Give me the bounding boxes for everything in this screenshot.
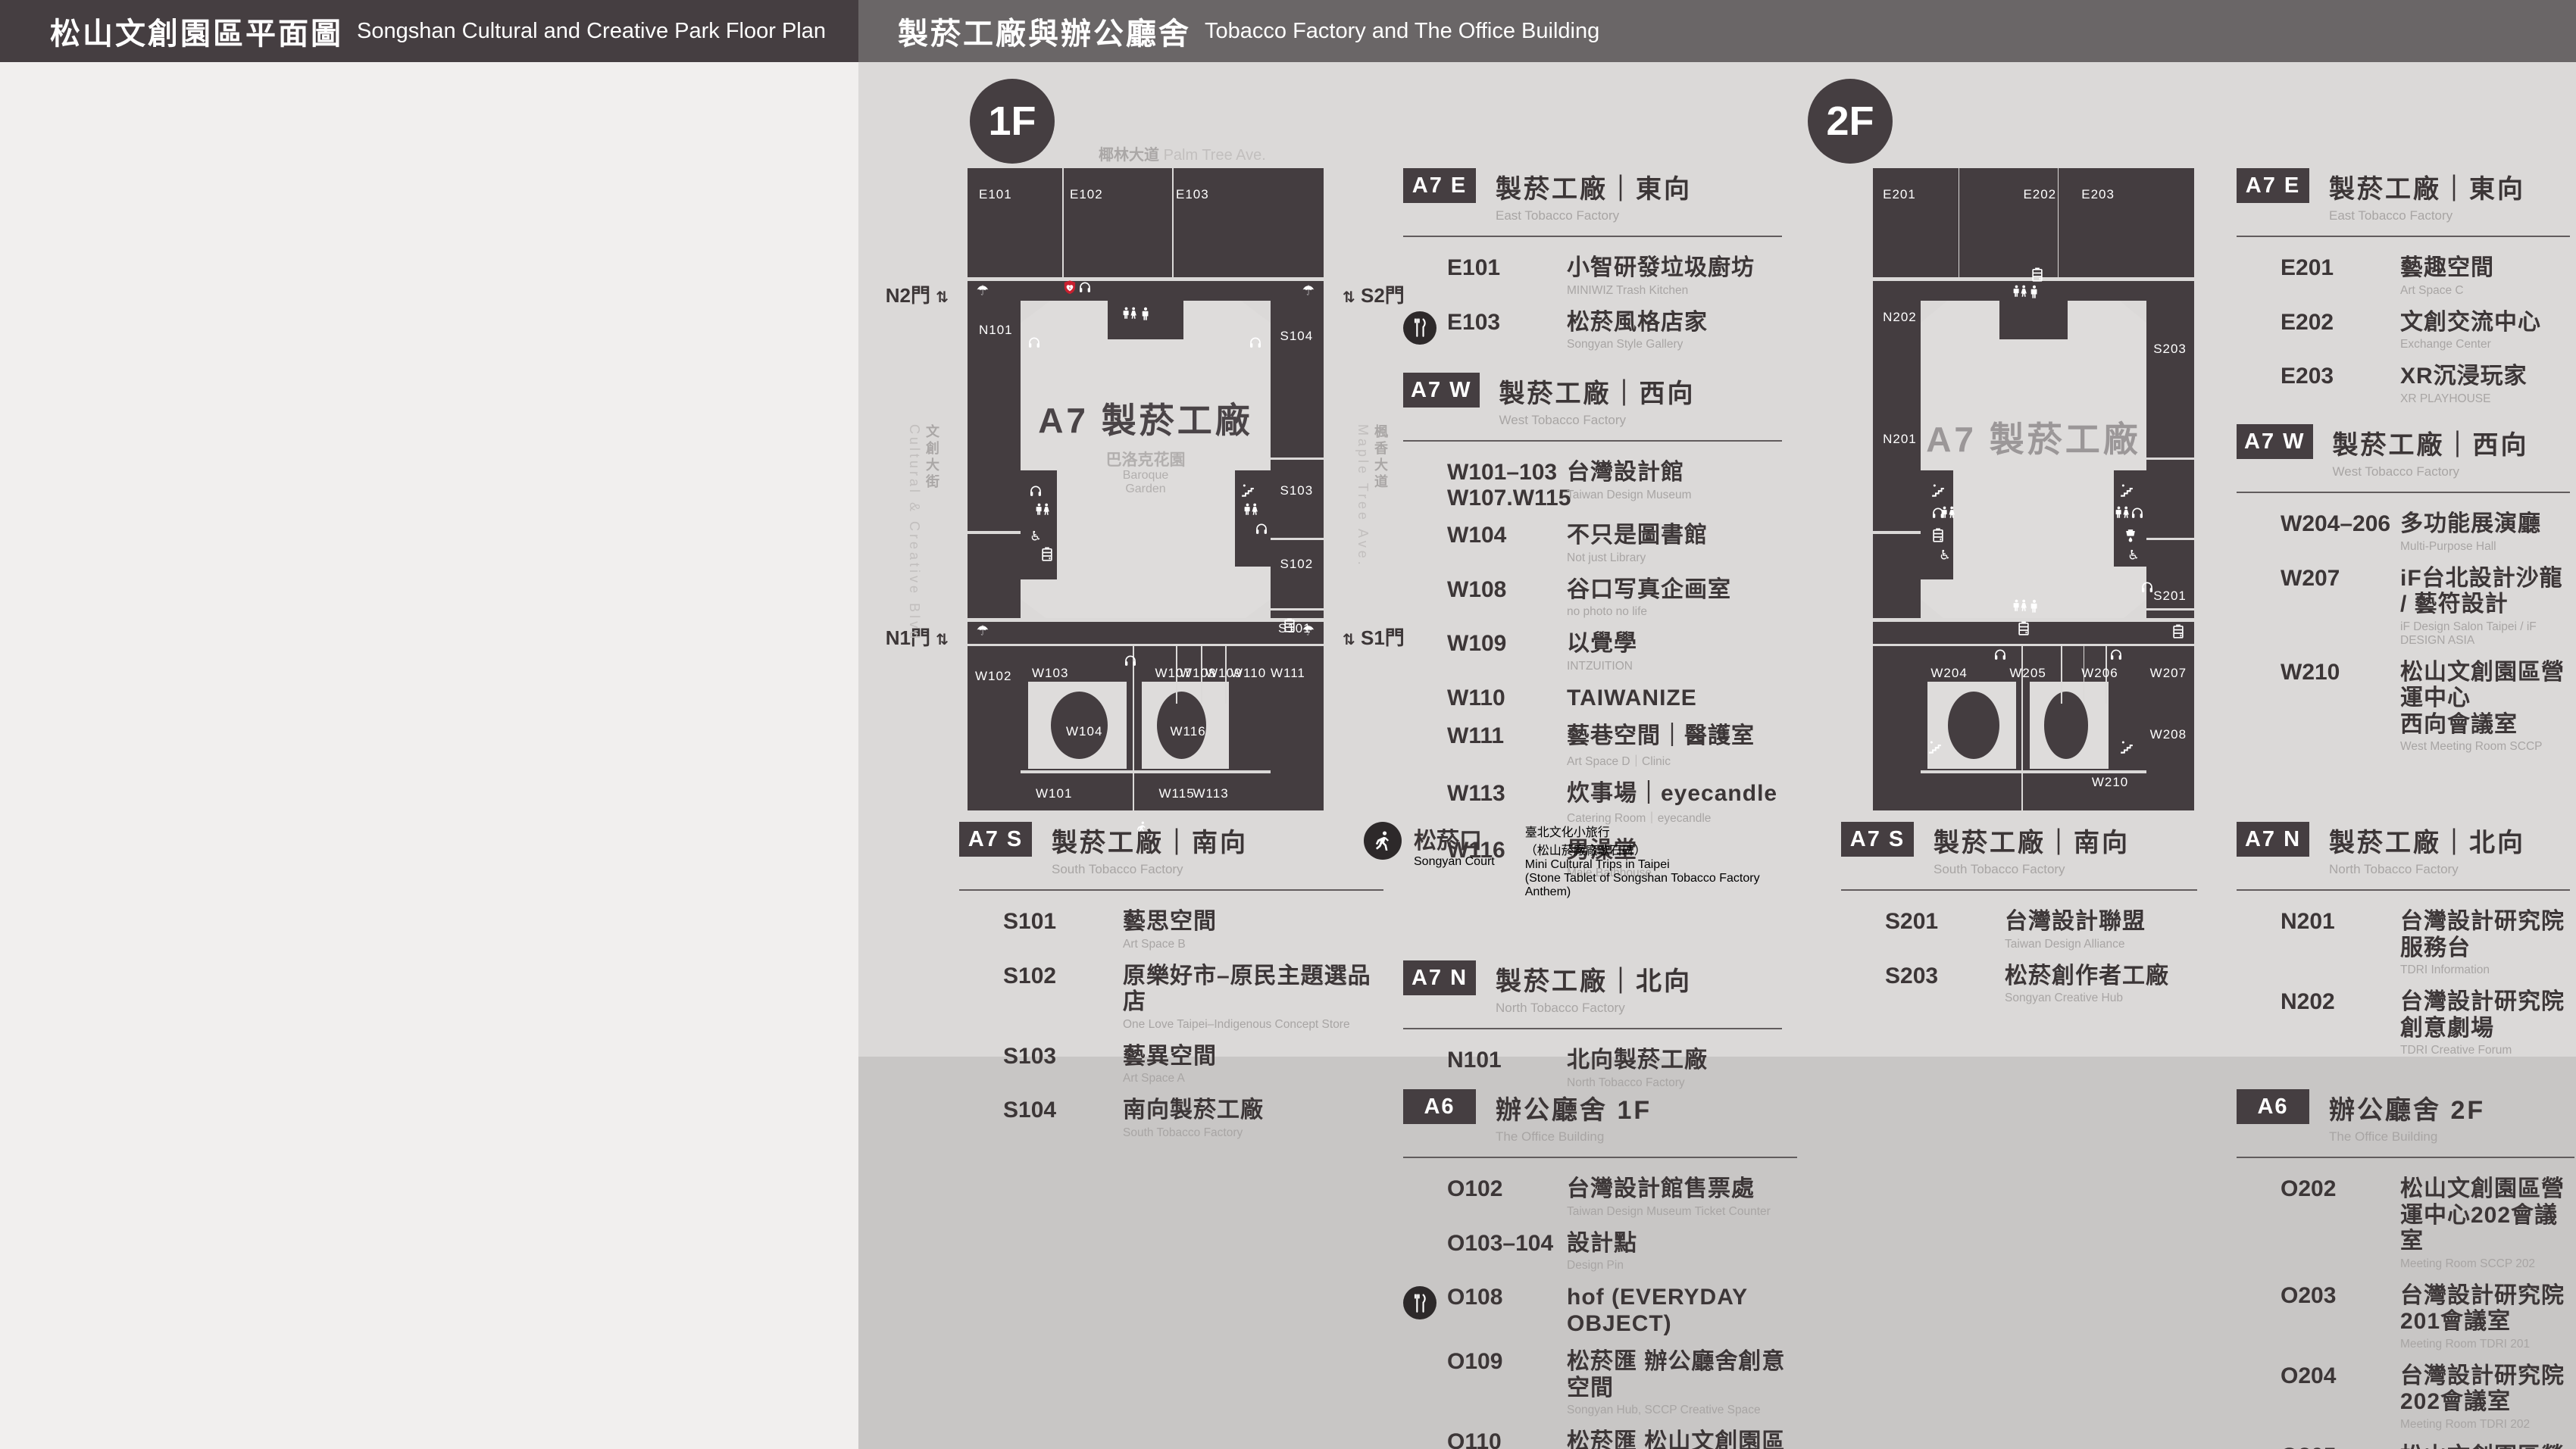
toilet-icon bbox=[1123, 306, 1138, 321]
list-item: W111藝巷空間｜醫護室Art Space D｜Clinic bbox=[1447, 723, 1782, 769]
room-code: O204 bbox=[2281, 1363, 2400, 1389]
garden-label-en: BaroqueGarden bbox=[1123, 469, 1169, 496]
item-name-en: Meeting Room TDRI 202 bbox=[2400, 1418, 2574, 1432]
section-title-zh: 製菸工廠與辦公廳舍 bbox=[898, 9, 1191, 53]
umbrella-icon: ☂ bbox=[975, 283, 990, 298]
section-rows: O102台灣設計館售票處Taiwan Design Museum Ticket … bbox=[1447, 1176, 1797, 1449]
section-title: 辦公廳舍 1FThe Office Building bbox=[1496, 1089, 1652, 1145]
wall-line bbox=[1959, 168, 1960, 277]
section-2f-west: A7 W製菸工廠｜西向West Tobacco FactoryW204–206多… bbox=[2237, 424, 2570, 766]
door-S1門: ⇅ S1門 bbox=[1343, 623, 1405, 651]
list-item: W101–103W107.W115台灣設計館Taiwan Design Muse… bbox=[1447, 460, 1782, 511]
top-facility-block bbox=[1999, 301, 2068, 339]
toilet-icon bbox=[2013, 284, 2028, 299]
room-label-E201: E201 bbox=[1883, 187, 1916, 202]
room-code: O108 bbox=[1447, 1285, 1567, 1310]
item-body: iF台北設計沙龍 / 藝符設計iF Design Salon Taipei / … bbox=[2400, 566, 2570, 648]
item-name-zh: 文創交流中心 bbox=[2400, 310, 2570, 336]
door-S2門: ⇅ S2門 bbox=[1343, 280, 1405, 308]
item-name-zh: 不只是圖書館 bbox=[1567, 523, 1782, 549]
item-name-zh: 藝思空間 bbox=[1123, 909, 1383, 935]
section-rows: N101北向製菸工廠North Tobacco Factory bbox=[1447, 1048, 1782, 1090]
door-N2門: N2門 ⇅ bbox=[886, 280, 949, 308]
wheelchair-icon: ♿ bbox=[1028, 528, 1043, 543]
item-body: 台灣設計研究院 創意劇場TDRI Creative Forum bbox=[2400, 989, 2570, 1057]
item-name-zh: TAIWANIZE bbox=[1567, 685, 1782, 712]
item-body: 台灣設計館Taiwan Design Museum bbox=[1567, 460, 1782, 502]
aed-icon bbox=[1062, 279, 1077, 295]
list-item: O103–104設計點Design Pin bbox=[1447, 1231, 1797, 1273]
walker-icon bbox=[1364, 822, 1402, 860]
wall-line bbox=[968, 531, 1021, 533]
item-name-zh: 台灣設計館售票處 bbox=[1567, 1176, 1797, 1203]
room-code: O109 bbox=[1447, 1349, 1567, 1375]
corridor-mid bbox=[1873, 622, 2195, 644]
room-code: W101–103W107.W115 bbox=[1447, 460, 1567, 511]
umbrella-icon: ☂ bbox=[975, 623, 990, 638]
item-name-zh: 松菸匯 辦公廳舍創意空間 bbox=[1567, 1349, 1797, 1401]
item-body: 藝異空間Art Space A bbox=[1123, 1044, 1383, 1086]
item-name-zh: 小智研發垃圾廚坊 bbox=[1567, 255, 1782, 282]
item-name-zh: 台灣設計研究院 服務台 bbox=[2400, 909, 2570, 961]
map-center-label: A7 製菸工廠 bbox=[1038, 393, 1253, 443]
item-body: 松菸匯 松山文創園區服務中心Songyan Hub, SCCP Informat… bbox=[1567, 1429, 1797, 1449]
map-center-label: A7 製菸工廠 bbox=[1926, 412, 2141, 462]
section-header: A7 E製菸工廠｜東向East Tobacco Factory bbox=[1403, 168, 1782, 223]
room-label-N202: N202 bbox=[1883, 310, 1917, 325]
item-name-zh: 松菸風格店家 bbox=[1567, 310, 1782, 336]
audio-icon bbox=[1027, 335, 1042, 350]
stairs-icon bbox=[1927, 740, 1943, 755]
item-name-en: Art Space A bbox=[1123, 1072, 1383, 1085]
item-body: 藝趣空間Art Space C bbox=[2400, 255, 2570, 298]
floor-map-2f: E201E202E203N202N201S203S201W204W205W206… bbox=[1862, 168, 2205, 810]
section-title-en: North Tobacco Factory bbox=[2329, 862, 2525, 877]
toilet-icon bbox=[1244, 502, 1259, 517]
section-title-zh: 製菸工廠｜北向 bbox=[2329, 822, 2525, 859]
section-title-en: North Tobacco Factory bbox=[1496, 1001, 1692, 1016]
section-divider bbox=[959, 889, 1383, 891]
room-label-S103: S103 bbox=[1280, 483, 1314, 498]
corridor-top bbox=[968, 281, 1324, 300]
room-label-S104: S104 bbox=[1280, 329, 1314, 344]
section-title-zh: 製菸工廠｜東向 bbox=[1496, 168, 1692, 205]
section-title-zh: 製菸工廠｜南向 bbox=[1934, 822, 2130, 859]
list-item: E201藝趣空間Art Space C bbox=[2281, 255, 2570, 298]
wall-line bbox=[2146, 538, 2194, 540]
locker-icon bbox=[1930, 528, 1946, 543]
item-body: hof (EVERYDAY OBJECT) bbox=[1567, 1285, 1797, 1337]
wall-line bbox=[2058, 168, 2059, 277]
item-name-en: Meeting Room SCCP 202 bbox=[2400, 1257, 2574, 1271]
songyan-court-row: 松菸口Songyan Court臺北文化小旅行（松山菸廠廠歌石碑）Mini Cu… bbox=[1364, 822, 1788, 899]
item-name-en: Meeting Room TDRI 201 bbox=[2400, 1338, 2574, 1351]
item-name-zh: 多功能展演廳 bbox=[2400, 511, 2570, 538]
room-label-W102: W102 bbox=[975, 669, 1011, 684]
section-badge: A6 bbox=[2237, 1089, 2309, 1124]
list-item: E103松菸風格店家Songyan Style Gallery bbox=[1447, 310, 1782, 352]
item-body: XR沉浸玩家XR PLAYHOUSE bbox=[2400, 364, 2570, 406]
room-code: W108 bbox=[1447, 577, 1567, 603]
section-divider bbox=[1403, 236, 1782, 237]
stairs-icon bbox=[2119, 483, 2134, 498]
stairs-icon bbox=[1240, 483, 1255, 498]
item-body: 台灣設計館售票處Taiwan Design Museum Ticket Coun… bbox=[1567, 1176, 1797, 1219]
wall-line bbox=[1271, 538, 1324, 540]
list-item: W207iF台北設計沙龍 / 藝符設計iF Design Salon Taipe… bbox=[2281, 566, 2570, 648]
item-name-en: Multi-Purpose Hall bbox=[2400, 540, 2570, 554]
room-code: W111 bbox=[1447, 723, 1567, 749]
item-body: 設計點Design Pin bbox=[1567, 1231, 1797, 1273]
section-title-en: East Tobacco Factory bbox=[1496, 208, 1692, 223]
item-body: 松菸風格店家Songyan Style Gallery bbox=[1567, 310, 1782, 352]
fnb-icon bbox=[1403, 1286, 1436, 1319]
section-header: A7 N製菸工廠｜北向North Tobacco Factory bbox=[2237, 822, 2570, 877]
item-body: 松山文創園區營運中心西向會議室West Meeting Room SCCP bbox=[2400, 660, 2570, 754]
section-title-zh: 辦公廳舍 2F bbox=[2329, 1089, 2485, 1126]
wall-line bbox=[1062, 168, 1064, 277]
item-name-zh: 藝異空間 bbox=[1123, 1044, 1383, 1070]
item-name-en: Songyan Creative Hub bbox=[2005, 992, 2197, 1005]
item-name-zh: 松山文創園區營運中心202會議室 bbox=[2400, 1176, 2574, 1255]
item-name-en: West Meeting Room SCCP bbox=[2400, 740, 2570, 754]
section-2f-east: A7 E製菸工廠｜東向East Tobacco FactoryE201藝趣空間A… bbox=[2237, 168, 2570, 418]
item-name-en: Songyan Hub, SCCP Creative Space bbox=[1567, 1404, 1797, 1417]
item-name-en: North Tobacco Factory bbox=[1567, 1076, 1782, 1090]
item-body: 松山文創園區營運中心201會議室Meeting Room SCCP 201 bbox=[2400, 1444, 2574, 1449]
section-title-zh: 製菸工廠｜東向 bbox=[2329, 168, 2525, 205]
section-title-en: South Tobacco Factory bbox=[1934, 862, 2130, 877]
toilet-icon bbox=[2115, 505, 2131, 520]
section-title: 製菸工廠｜東向East Tobacco Factory bbox=[2329, 168, 2525, 223]
list-item: W104不只是圖書館Not just Library bbox=[1447, 523, 1782, 565]
item-name-en: Art Space D｜Clinic bbox=[1567, 752, 1782, 769]
item-name-zh: 以覺學 bbox=[1567, 631, 1782, 657]
item-markers bbox=[1403, 1286, 1436, 1319]
section-rows: N201台灣設計研究院 服務台TDRI InformationN202台灣設計研… bbox=[2281, 909, 2570, 1057]
wall-line bbox=[968, 644, 1324, 646]
wall-line bbox=[2061, 646, 2062, 704]
floor-badge-2f: 2F bbox=[1808, 79, 1893, 164]
item-body: 藝思空間Art Space B bbox=[1123, 909, 1383, 951]
list-item: N202台灣設計研究院 創意劇場TDRI Creative Forum bbox=[2281, 989, 2570, 1057]
audio-icon bbox=[2109, 647, 2124, 662]
item-name-en: iF Design Salon Taipei / iF DESIGN ASIA bbox=[2400, 620, 2570, 648]
audio-icon bbox=[1248, 335, 1263, 350]
room-code: E103 bbox=[1447, 310, 1567, 336]
item-body: 台灣設計研究院202會議室Meeting Room TDRI 202 bbox=[2400, 1363, 2574, 1432]
room-label-N201: N201 bbox=[1883, 432, 1917, 447]
item-body: 谷口写真企画室no photo no life bbox=[1567, 577, 1782, 620]
section-1f-south: A7 S製菸工廠｜南向South Tobacco FactoryS101藝思空間… bbox=[959, 822, 1383, 1152]
audio-icon bbox=[1993, 647, 2008, 662]
section-rows: O202松山文創園區營運中心202會議室Meeting Room SCCP 20… bbox=[2281, 1176, 2574, 1449]
item-name-en: Taiwan Design Alliance bbox=[2005, 938, 2197, 951]
room-code: W110 bbox=[1447, 685, 1567, 711]
stairs-icon bbox=[1930, 483, 1946, 498]
list-item: E202文創交流中心Exchange Center bbox=[2281, 310, 2570, 352]
item-body: 藝巷空間｜醫護室Art Space D｜Clinic bbox=[1567, 723, 1782, 769]
item-name-zh: 炊事場｜eyecandle bbox=[1567, 781, 1782, 807]
item-body: 不只是圖書館Not just Library bbox=[1567, 523, 1782, 565]
item-name-en: South Tobacco Factory bbox=[1123, 1126, 1383, 1140]
room-label-S102: S102 bbox=[1280, 557, 1314, 572]
item-name-zh: 台灣設計聯盟 bbox=[2005, 909, 2197, 935]
list-item: O108hof (EVERYDAY OBJECT) bbox=[1447, 1285, 1797, 1337]
room-label-W205: W205 bbox=[2009, 666, 2046, 681]
section-2f-north: A7 N製菸工廠｜北向North Tobacco FactoryN201台灣設計… bbox=[2237, 822, 2570, 1070]
list-item: W109以覺學INTZUITION bbox=[1447, 631, 1782, 673]
wall-line bbox=[1021, 770, 1271, 773]
section-rows: E201藝趣空間Art Space CE202文創交流中心Exchange Ce… bbox=[2281, 255, 2570, 406]
list-item: O109松菸匯 辦公廳舍創意空間Songyan Hub, SCCP Creati… bbox=[1447, 1349, 1797, 1417]
room-code: S104 bbox=[1003, 1098, 1123, 1123]
list-item: O204台灣設計研究院202會議室Meeting Room TDRI 202 bbox=[2281, 1363, 2574, 1432]
water-icon bbox=[2123, 528, 2138, 543]
item-name-zh: 松菸創作者工廠 bbox=[2005, 963, 2197, 990]
header-right: 製菸工廠與辦公廳舍 Tobacco Factory and The Office… bbox=[858, 0, 2576, 62]
section-rows: S201台灣設計聯盟Taiwan Design AllianceS203松菸創作… bbox=[1885, 909, 2197, 1005]
wall-line bbox=[1921, 770, 2146, 773]
room-label-W207: W207 bbox=[2150, 666, 2187, 681]
room-label-E203: E203 bbox=[2081, 187, 2115, 202]
item-body: 以覺學INTZUITION bbox=[1567, 631, 1782, 673]
item-name-en: no photo no life bbox=[1567, 605, 1782, 619]
item-name-en: TDRI Creative Forum bbox=[2400, 1044, 2570, 1057]
item-body: 松菸創作者工廠Songyan Creative Hub bbox=[2005, 963, 2197, 1006]
room-code: S201 bbox=[1885, 909, 2005, 935]
item-name-en: Not just Library bbox=[1567, 551, 1782, 565]
room-label-E101: E101 bbox=[979, 187, 1012, 202]
item-body: 小智研發垃圾廚坊MINIWIZ Trash Kitchen bbox=[1567, 255, 1782, 298]
section-badge: A7 N bbox=[1403, 960, 1476, 995]
svg-text:☂: ☂ bbox=[1302, 623, 1315, 638]
section-title: 製菸工廠｜南向South Tobacco Factory bbox=[1934, 822, 2130, 877]
item-body: 松山文創園區營運中心202會議室Meeting Room SCCP 202 bbox=[2400, 1176, 2574, 1271]
item-name-en: INTZUITION bbox=[1567, 660, 1782, 673]
item-name-en: One Love Taipei–Indigenous Concept Store bbox=[1123, 1018, 1383, 1032]
item-name-zh: 南向製菸工廠 bbox=[1123, 1098, 1383, 1124]
garden-label-zh: 巴洛克花園 bbox=[1106, 448, 1186, 470]
room-label-E102: E102 bbox=[1070, 187, 1103, 202]
item-body: 台灣設計研究院 服務台TDRI Information bbox=[2400, 909, 2570, 977]
svg-text:☂: ☂ bbox=[977, 283, 989, 298]
svg-text:☂: ☂ bbox=[1302, 283, 1315, 298]
locker-icon bbox=[2171, 624, 2186, 639]
item-name-zh: 台灣設計研究院 創意劇場 bbox=[2400, 989, 2570, 1041]
item-name-zh: 谷口写真企画室 bbox=[1567, 577, 1782, 604]
item-markers bbox=[1403, 311, 1436, 345]
room-code: S102 bbox=[1003, 963, 1123, 989]
list-item: W113炊事場｜eyecandleCatering Room｜eyecandle bbox=[1447, 781, 1782, 826]
item-name-zh: 藝趣空間 bbox=[2400, 255, 2570, 282]
floor-plan-poster: 松山文創園區平面圖 Songshan Cultural and Creative… bbox=[0, 0, 2576, 1449]
room-label-W208: W208 bbox=[2150, 727, 2187, 742]
wall-line bbox=[968, 278, 1324, 281]
section-badge: A7 W bbox=[1403, 373, 1480, 408]
item-name-zh: hof (EVERYDAY OBJECT) bbox=[1567, 1285, 1797, 1337]
street-cultural-blvd: 文創大街Cultural & Creative Blvd. bbox=[906, 424, 942, 648]
audio-icon bbox=[1123, 653, 1138, 668]
list-item: S101藝思空間Art Space B bbox=[1003, 909, 1383, 951]
list-item: N101北向製菸工廠North Tobacco Factory bbox=[1447, 1048, 1782, 1090]
item-name-en: Exchange Center bbox=[2400, 338, 2570, 351]
item-name-en: Taiwan Design Museum Ticket Counter bbox=[1567, 1205, 1797, 1219]
section-divider bbox=[2237, 236, 2570, 237]
item-name-zh: 北向製菸工廠 bbox=[1567, 1048, 1782, 1074]
wall-line bbox=[1873, 618, 2195, 621]
person-icon bbox=[1138, 306, 1153, 321]
person-icon bbox=[2027, 284, 2042, 299]
section-header: A7 E製菸工廠｜東向East Tobacco Factory bbox=[2237, 168, 2570, 223]
list-item: O110松菸匯 松山文創園區服務中心Songyan Hub, SCCP Info… bbox=[1447, 1429, 1797, 1449]
item-name-zh: iF台北設計沙龍 / 藝符設計 bbox=[2400, 566, 2570, 618]
section-1f-north: A7 N製菸工廠｜北向North Tobacco FactoryN101北向製菸… bbox=[1403, 960, 1782, 1102]
audio-icon bbox=[1077, 279, 1093, 295]
list-item: E101小智研發垃圾廚坊MINIWIZ Trash Kitchen bbox=[1447, 255, 1782, 298]
item-name-en: Songyan Style Gallery bbox=[1567, 338, 1782, 351]
room-code: O205 bbox=[2281, 1444, 2400, 1449]
section-badge: A7 S bbox=[1841, 822, 1914, 857]
room-label-W116: W116 bbox=[1171, 724, 1206, 739]
item-name-zh: 台灣設計研究院202會議室 bbox=[2400, 1363, 2574, 1416]
floor-map-1f: E101E102E103N101W102S104S103S102S101W103… bbox=[956, 168, 1335, 810]
wall-line bbox=[1271, 608, 1324, 611]
court-desc-zh: 臺北文化小旅行（松山菸廠廠歌石碑） bbox=[1525, 822, 1788, 858]
toilet-icon bbox=[2013, 598, 2028, 614]
room-code: O110 bbox=[1447, 1429, 1567, 1449]
section-title-zh: 製菸工廠｜西向 bbox=[1499, 373, 1696, 410]
oval-room-left bbox=[1948, 692, 1999, 759]
umbrella-icon: ☂ bbox=[1301, 283, 1316, 298]
page-title-zh: 松山文創園區平面圖 bbox=[50, 9, 343, 53]
header-left: 松山文創園區平面圖 Songshan Cultural and Creative… bbox=[0, 0, 858, 62]
svg-text:☂: ☂ bbox=[977, 623, 989, 638]
section-badge: A7 E bbox=[2237, 168, 2309, 203]
audio-icon bbox=[2130, 505, 2145, 520]
court-en: Songyan Court bbox=[1414, 855, 1505, 869]
section-header: A6辦公廳舍 2FThe Office Building bbox=[2237, 1089, 2574, 1145]
section-1f-east: A7 E製菸工廠｜東向East Tobacco FactoryE101小智研發垃… bbox=[1403, 168, 1782, 364]
list-item: S203松菸創作者工廠Songyan Creative Hub bbox=[1885, 963, 2197, 1006]
room-code: E201 bbox=[2281, 255, 2400, 281]
wall-line bbox=[1271, 457, 1324, 460]
room-label-W115: W115 bbox=[1159, 786, 1195, 801]
item-body: 炊事場｜eyecandleCatering Room｜eyecandle bbox=[1567, 781, 1782, 826]
section-rows: W204–206多功能展演廳Multi-Purpose HallW207iF台北… bbox=[2281, 511, 2570, 754]
item-body: 松菸匯 辦公廳舍創意空間Songyan Hub, SCCP Creative S… bbox=[1567, 1349, 1797, 1417]
room-code: W210 bbox=[2281, 660, 2400, 685]
court-desc-en: Mini Cultural Trips in Taipei(Stone Tabl… bbox=[1525, 858, 1788, 899]
audio-icon bbox=[1028, 483, 1043, 498]
stairs-icon bbox=[2119, 740, 2134, 755]
room-code: O203 bbox=[2281, 1283, 2400, 1309]
office-building-map-2f bbox=[1876, 1142, 2179, 1369]
room-label-S203: S203 bbox=[2153, 342, 2187, 357]
section-divider bbox=[2237, 889, 2570, 891]
item-body: TAIWANIZE bbox=[1567, 685, 1782, 712]
room-code: N202 bbox=[2281, 989, 2400, 1015]
room-code: O202 bbox=[2281, 1176, 2400, 1202]
room-label-S201: S201 bbox=[2153, 589, 2187, 604]
locker-icon bbox=[2030, 267, 2045, 283]
svg-text:♿: ♿ bbox=[2127, 548, 2140, 562]
section-title: 辦公廳舍 2FThe Office Building bbox=[2329, 1089, 2485, 1145]
oval-room-right bbox=[2044, 692, 2089, 759]
room-code: W204–206 bbox=[2281, 511, 2400, 537]
page-title-en: Songshan Cultural and Creative Park Floo… bbox=[357, 19, 826, 44]
section-badge: A7 E bbox=[1403, 168, 1476, 203]
wing-east bbox=[968, 168, 1324, 277]
item-name-en: Art Space C bbox=[2400, 284, 2570, 298]
section-2f-south: A7 S製菸工廠｜南向South Tobacco FactoryS201台灣設計… bbox=[1841, 822, 2197, 1017]
item-name-en: Taiwan Design Museum bbox=[1567, 489, 1782, 502]
item-name-zh: 松山文創園區營運中心201會議室 bbox=[2400, 1444, 2574, 1449]
room-code: E101 bbox=[1447, 255, 1567, 281]
list-item: O205松山文創園區營運中心201會議室Meeting Room SCCP 20… bbox=[2281, 1444, 2574, 1449]
audio-icon bbox=[1254, 521, 1269, 536]
room-label-W101: W101 bbox=[1036, 786, 1072, 801]
svg-text:♿: ♿ bbox=[1030, 529, 1042, 543]
street-palm-ave: 椰林大道 Palm Tree Ave. bbox=[1099, 142, 1266, 164]
room-label-W111: W111 bbox=[1271, 666, 1305, 681]
item-body: 原樂好市–原民主題選品店One Love Taipei–Indigenous C… bbox=[1123, 963, 1383, 1032]
section-rows: E101小智研發垃圾廚坊MINIWIZ Trash KitchenE103松菸風… bbox=[1447, 255, 1782, 351]
corridor-mid bbox=[968, 622, 1324, 644]
wall-line bbox=[1133, 646, 1134, 810]
section-header: A7 N製菸工廠｜北向North Tobacco Factory bbox=[1403, 960, 1782, 1016]
room-code: O103–104 bbox=[1447, 1231, 1567, 1257]
item-body: 南向製菸工廠South Tobacco Factory bbox=[1123, 1098, 1383, 1140]
section-divider bbox=[1403, 1157, 1797, 1158]
room-code: W109 bbox=[1447, 631, 1567, 657]
songyan-court-name: 松菸口Songyan Court bbox=[1414, 822, 1505, 899]
list-item: O202松山文創園區營運中心202會議室Meeting Room SCCP 20… bbox=[2281, 1176, 2574, 1271]
locker-icon bbox=[2016, 621, 2031, 636]
list-item: W108谷口写真企画室no photo no life bbox=[1447, 577, 1782, 620]
item-body: 文創交流中心Exchange Center bbox=[2400, 310, 2570, 352]
section-1f-office: A6辦公廳舍 1FThe Office BuildingO102台灣設計館售票處… bbox=[1403, 1089, 1797, 1449]
wall-line bbox=[2146, 608, 2194, 611]
section-title-zh: 製菸工廠｜北向 bbox=[1496, 960, 1692, 998]
wall-line bbox=[1873, 531, 1921, 533]
section-badge: A7 W bbox=[2237, 424, 2313, 459]
item-name-zh: XR沉浸玩家 bbox=[2400, 364, 2570, 390]
item-name-zh: 松山文創園區營運中心西向會議室 bbox=[2400, 660, 2570, 739]
list-item: E203XR沉浸玩家XR PLAYHOUSE bbox=[2281, 364, 2570, 406]
item-body: 台灣設計研究院201會議室Meeting Room TDRI 201 bbox=[2400, 1283, 2574, 1351]
section-rows: S101藝思空間Art Space BS102原樂好市–原民主題選品店One L… bbox=[1003, 909, 1383, 1140]
umbrella-icon: ☂ bbox=[1301, 623, 1316, 638]
section-2f-office: A6辦公廳舍 2FThe Office BuildingO202松山文創園區營運… bbox=[2237, 1089, 2574, 1449]
section-title: 製菸工廠｜北向North Tobacco Factory bbox=[2329, 822, 2525, 877]
office-building-map-1f bbox=[956, 1142, 1274, 1369]
wing-east bbox=[1873, 168, 2195, 277]
room-label-W104: W104 bbox=[1066, 724, 1102, 739]
section-divider bbox=[1403, 1028, 1782, 1029]
section-header: A7 S製菸工廠｜南向South Tobacco Factory bbox=[1841, 822, 2197, 877]
item-body: 多功能展演廳Multi-Purpose Hall bbox=[2400, 511, 2570, 554]
list-item: O203台灣設計研究院201會議室Meeting Room TDRI 201 bbox=[2281, 1283, 2574, 1351]
locker-icon bbox=[1282, 618, 1297, 633]
list-item: S103藝異空間Art Space A bbox=[1003, 1044, 1383, 1086]
section-badge: A7 N bbox=[2237, 822, 2309, 857]
wall-line bbox=[968, 618, 1324, 621]
section-title-zh: 辦公廳舍 1F bbox=[1496, 1089, 1652, 1126]
section-header: A7 W製菸工廠｜西向West Tobacco Factory bbox=[2237, 424, 2570, 479]
item-body: 北向製菸工廠North Tobacco Factory bbox=[1567, 1048, 1782, 1090]
room-code: W207 bbox=[2281, 566, 2400, 592]
